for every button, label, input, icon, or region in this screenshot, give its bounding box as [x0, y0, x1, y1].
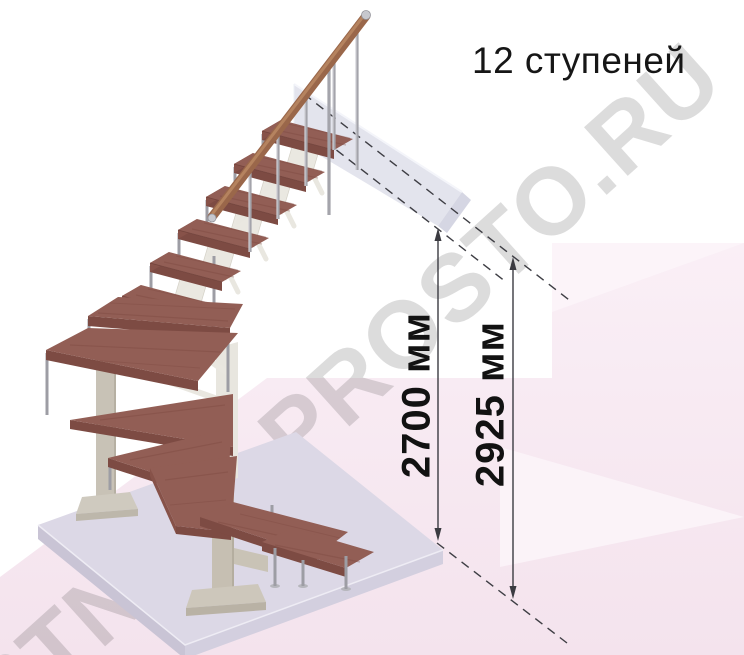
dimension-label-2700: 2700 мм [395, 312, 440, 478]
dimension-label-2925: 2925 мм [469, 321, 514, 487]
staircase-diagram-page: LESTNICY-PROSTO.RU [0, 0, 744, 655]
steps-count-label: 12 ступеней [472, 40, 712, 82]
staircase-figure: LESTNICY-PROSTO.RU [0, 0, 744, 655]
